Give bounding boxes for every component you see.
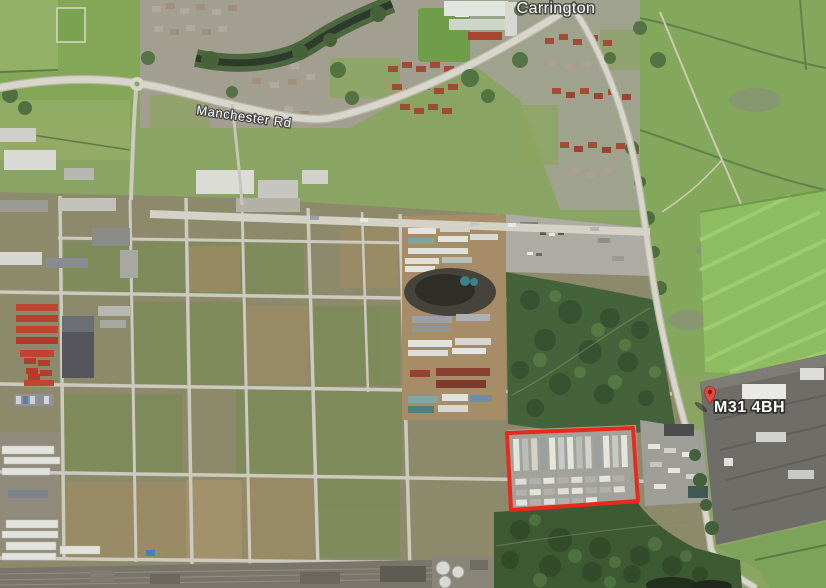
place-label[interactable]: Carrington <box>517 0 596 17</box>
container-yard <box>402 214 506 420</box>
trailer-parking-lot <box>506 425 640 512</box>
striped-crop-field <box>700 190 826 378</box>
map-canvas[interactable]: M31 4BH Carrington Manchester Rd <box>0 0 826 588</box>
map-pin-dot <box>708 390 712 394</box>
truck-depot-east <box>640 420 710 506</box>
postcode-label: M31 4BH <box>714 399 785 416</box>
